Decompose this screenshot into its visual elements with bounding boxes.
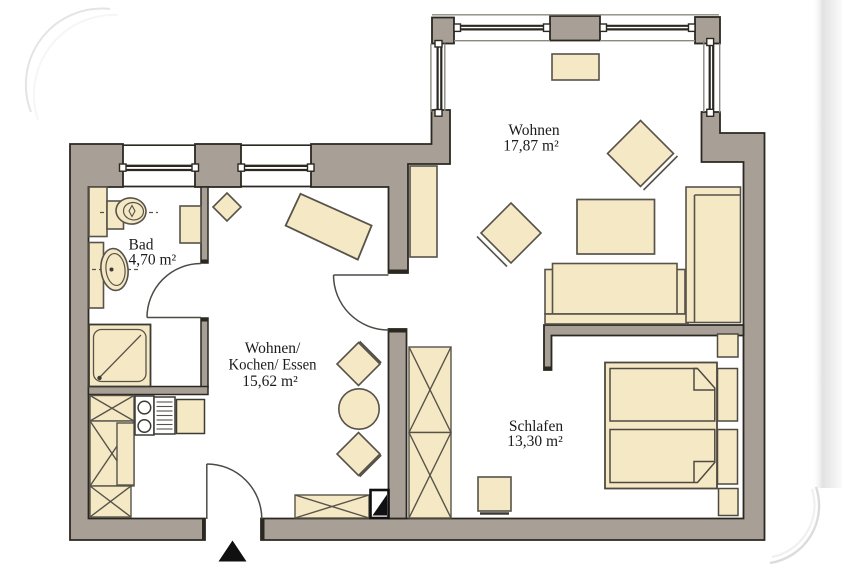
svg-text:Wohnen: Wohnen [508, 122, 560, 139]
svg-text:17,87 m²: 17,87 m² [503, 137, 559, 154]
svg-text:4,70 m²: 4,70 m² [129, 252, 177, 269]
svg-text:15,62 m²: 15,62 m² [242, 373, 298, 390]
svg-text:13,30 m²: 13,30 m² [507, 433, 563, 450]
svg-text:Kochen/ Essen: Kochen/ Essen [229, 356, 317, 373]
svg-text:Wohnen/: Wohnen/ [245, 340, 301, 357]
